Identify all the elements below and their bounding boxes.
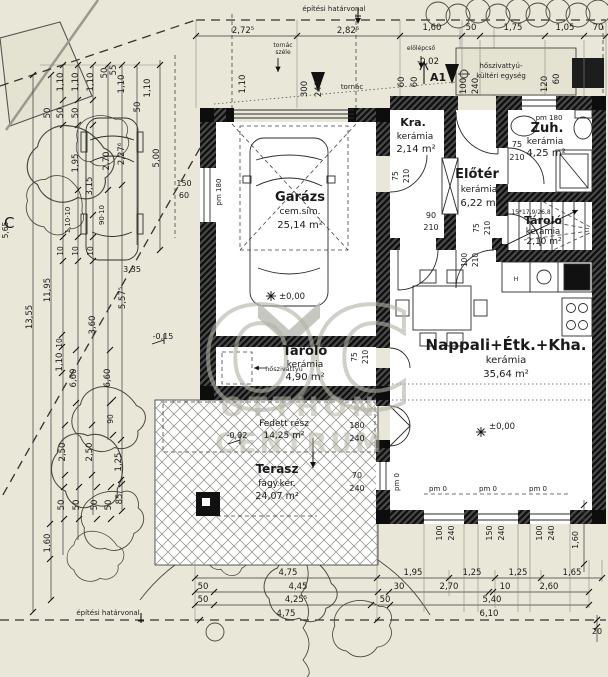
dim-label: 55 bbox=[109, 65, 119, 76]
dim-label: 1,60 bbox=[571, 531, 580, 549]
room-garazs-area: 25,14 m² bbox=[277, 220, 323, 231]
dim-label: 120 bbox=[540, 76, 550, 92]
dim-label: 2,50 bbox=[58, 443, 68, 462]
garage-window bbox=[200, 168, 216, 222]
dim-label: pm 180 bbox=[536, 114, 563, 122]
dim-label: pm 0 bbox=[429, 485, 447, 493]
dim-label: 2,72⁵ bbox=[232, 26, 254, 36]
tornac-szele-label-2: széle bbox=[275, 49, 291, 56]
south-window-3 bbox=[530, 510, 570, 524]
heatpump-label: hőszivattyú bbox=[265, 364, 303, 373]
room-kra-name: Kra. bbox=[400, 116, 426, 129]
dim-label: 300 bbox=[300, 81, 310, 97]
dim-label: 4,25⁵ bbox=[285, 595, 307, 605]
dim-label: 1,10 bbox=[55, 353, 65, 372]
dim-label: H bbox=[514, 276, 519, 283]
room-eloter-name: Előtér bbox=[455, 167, 499, 182]
room-nappali-area: 35,64 m² bbox=[483, 369, 529, 380]
fridge bbox=[564, 264, 590, 290]
dim-label: 60 bbox=[552, 74, 562, 85]
dim-label: 2,70 bbox=[440, 582, 459, 592]
room-tarolo2-finish: kerámia bbox=[526, 227, 560, 237]
dim-label: 50 bbox=[198, 595, 209, 605]
south-window-2 bbox=[478, 510, 518, 524]
zuh-window bbox=[522, 96, 556, 110]
dim-label: 50 bbox=[56, 108, 66, 119]
dim-label: ±0,00 bbox=[279, 292, 305, 302]
dim-label: 1,25 bbox=[114, 453, 124, 472]
dim-label: 10 bbox=[71, 246, 80, 256]
dim-label: 75 bbox=[350, 352, 359, 362]
dim-label: 50 bbox=[72, 500, 82, 511]
dim-label: 10 bbox=[500, 582, 511, 592]
dim-label: 3,35 bbox=[123, 265, 141, 274]
dim-label: 1,95 bbox=[71, 154, 81, 173]
room-zuh-finish: kerámia bbox=[527, 137, 563, 147]
dim-label: 60 bbox=[410, 77, 420, 88]
room-kra-finish: kerámia bbox=[397, 132, 433, 142]
dim-label: -0,02 bbox=[417, 57, 439, 67]
dim-label: pm 0 bbox=[393, 473, 401, 491]
dim-label: 50 bbox=[466, 23, 477, 33]
dim-label: 180 bbox=[349, 421, 364, 430]
dim-label: 1,10 bbox=[238, 75, 248, 94]
room-zuh-name: Zuh. bbox=[531, 121, 564, 136]
dim-label: 90 bbox=[106, 414, 115, 424]
room-terasz-name: Terasz bbox=[256, 462, 299, 476]
south-window-1 bbox=[424, 510, 464, 524]
dim-label: 2,60 bbox=[540, 582, 559, 592]
dim-label: 100 bbox=[435, 525, 444, 540]
dim-label: 5,40 bbox=[483, 595, 502, 605]
dim-label: 3,15 bbox=[85, 177, 95, 196]
dim-label: 1,10 bbox=[117, 75, 127, 94]
terrace-window bbox=[376, 462, 390, 490]
dim-label: 210 bbox=[361, 350, 370, 365]
dim-label: 240 bbox=[314, 81, 324, 97]
dim-label: 1,10 bbox=[71, 73, 81, 92]
dim-label: 50 bbox=[71, 108, 81, 119]
dim-label: 1,10·10 bbox=[64, 207, 72, 234]
dim-label: ±0,00 bbox=[489, 422, 515, 432]
dim-label: 210 bbox=[509, 153, 524, 162]
dim-label: 1,60 bbox=[43, 534, 53, 553]
section-label: A1 bbox=[430, 71, 446, 84]
dim-label: 90 bbox=[426, 211, 436, 220]
dim-label: 4,75 bbox=[277, 609, 296, 619]
dim-label: 2,70 bbox=[102, 152, 112, 171]
room-terasz-area: 24,07 m² bbox=[255, 491, 298, 502]
boundary-top-label: építési határvonal bbox=[302, 5, 365, 13]
dim-label: 13,55 bbox=[25, 305, 35, 329]
room-garazs-name: Garázs bbox=[275, 190, 325, 205]
dim-label: 4,45 bbox=[289, 582, 308, 592]
dim-label: 2,50 bbox=[85, 443, 95, 462]
dim-label: 1,75 bbox=[504, 23, 523, 33]
room-eloter-finish: kerámia bbox=[461, 185, 497, 195]
dim-label: 240 bbox=[547, 525, 556, 540]
dim-label: 6,60 bbox=[69, 369, 79, 388]
dim-label: 50 bbox=[43, 108, 53, 119]
room-tarolo2-area: 2,10 m² bbox=[526, 237, 562, 247]
dim-label: 20 bbox=[592, 627, 602, 636]
room-nappali-finish: kerámia bbox=[486, 354, 526, 366]
stairs-note: 15*17,9/26,8 bbox=[511, 209, 551, 216]
dim-label: 70 bbox=[593, 23, 604, 33]
room-eloter-area: 6,22 m² bbox=[460, 198, 499, 209]
room-kra-area: 2,14 m² bbox=[396, 144, 435, 155]
dim-label: 75 bbox=[472, 223, 481, 233]
dim-label: pm 0 bbox=[529, 485, 547, 493]
room-garazs-finish: cem.sim. bbox=[280, 207, 321, 217]
dim-label: 10 bbox=[56, 246, 65, 256]
dim-label: -0,15 bbox=[153, 332, 174, 341]
dim-label: 240 bbox=[497, 525, 506, 540]
dim-label: 240 bbox=[349, 434, 364, 443]
tornac-szele-label-1: tornác bbox=[273, 42, 292, 49]
elolepcso-label: előlépcső bbox=[407, 45, 436, 52]
dim-label: 11,95 bbox=[43, 278, 53, 302]
dim-label: 210 bbox=[471, 253, 480, 268]
heatpump-outdoor-label-2: kültéri egység bbox=[476, 72, 526, 80]
dim-label: pm 180 bbox=[215, 179, 223, 206]
boundary-bottom-label: építési határvonal bbox=[76, 609, 139, 617]
room-tarolo1-area: 4,90 m² bbox=[285, 372, 324, 383]
dim-label: 10 bbox=[86, 246, 95, 256]
dim-label: 2,27⁶ bbox=[117, 142, 127, 165]
floor-plan-canvas: OC OTTHON CENTRUM Garázs cem.sim. 25,14 … bbox=[0, 0, 608, 677]
dim-label: 240 bbox=[349, 484, 364, 493]
dim-label: 100 bbox=[459, 78, 469, 94]
dim-label: 50 bbox=[133, 102, 143, 113]
dim-label: 210 bbox=[483, 221, 492, 236]
dim-label: 60 bbox=[397, 77, 407, 88]
dim-label: 75 bbox=[512, 140, 522, 149]
dim-label: 100 bbox=[460, 253, 469, 268]
dim-label: 1,10 bbox=[86, 73, 96, 92]
dim-label: 50 bbox=[380, 595, 391, 605]
dim-label: 4,75 bbox=[279, 568, 298, 578]
dim-label: 1,05 bbox=[556, 23, 575, 33]
dim-label: 6,60 bbox=[103, 369, 113, 388]
dim-label: 210 bbox=[423, 223, 438, 232]
dim-label: 1,60 bbox=[423, 23, 442, 33]
dim-label: 30 bbox=[394, 582, 405, 592]
dim-label: 50 bbox=[198, 582, 209, 592]
dim-label: 50 bbox=[90, 500, 100, 511]
dim-label: 1,65 bbox=[563, 568, 582, 578]
tornac-label: tornác bbox=[341, 83, 364, 91]
dim-label: 240 bbox=[471, 78, 481, 94]
heatpump-outdoor-label-1: hőszivattyú- bbox=[479, 61, 522, 70]
room-nappali-name: Nappali+Étk.+Kha. bbox=[426, 335, 587, 354]
dim-label: 5,57⁵ bbox=[118, 287, 128, 309]
dim-label: 1,25 bbox=[509, 568, 528, 578]
dim-label: 6,10 bbox=[480, 609, 499, 619]
dim-label: 1,10 bbox=[143, 79, 153, 98]
dim-label: pm 0 bbox=[479, 485, 497, 493]
dim-label: 100 bbox=[535, 525, 544, 540]
dim-label: -0,02 bbox=[227, 431, 248, 440]
dim-label: 1,10 bbox=[56, 73, 66, 92]
dim-label: 50 bbox=[104, 500, 114, 511]
dim-label: 5,00 bbox=[152, 149, 162, 168]
dim-label: 150 bbox=[176, 179, 191, 188]
dim-label: 50 bbox=[57, 500, 67, 511]
dim-label: 85 bbox=[115, 494, 125, 505]
covered-area-label: Fedett rész bbox=[259, 418, 309, 429]
dim-label: 90·10 bbox=[98, 205, 106, 225]
room-tarolo1-name: Tároló bbox=[283, 344, 328, 359]
dim-label: 3,60 bbox=[88, 316, 98, 335]
dim-label: 70 bbox=[352, 471, 362, 480]
dim-label: 150 bbox=[485, 525, 494, 540]
dim-label: 60 bbox=[179, 191, 189, 200]
room-zuh-area: 4,25 m² bbox=[526, 148, 565, 159]
dim-label: 5,65 bbox=[1, 221, 10, 238]
dim-label: 240 bbox=[447, 525, 456, 540]
dim-label: 210 bbox=[402, 169, 411, 184]
dim-label: 1,95 bbox=[404, 568, 423, 578]
room-terasz-finish: fagy.ker. bbox=[258, 479, 295, 489]
dim-label: 1,25 bbox=[463, 568, 482, 578]
covered-area-value: 14,25 m² bbox=[263, 431, 304, 441]
dim-label: 75 bbox=[391, 171, 400, 181]
dim-label: 2,82⁵ bbox=[337, 26, 359, 36]
dim-label: 10 bbox=[55, 338, 64, 348]
